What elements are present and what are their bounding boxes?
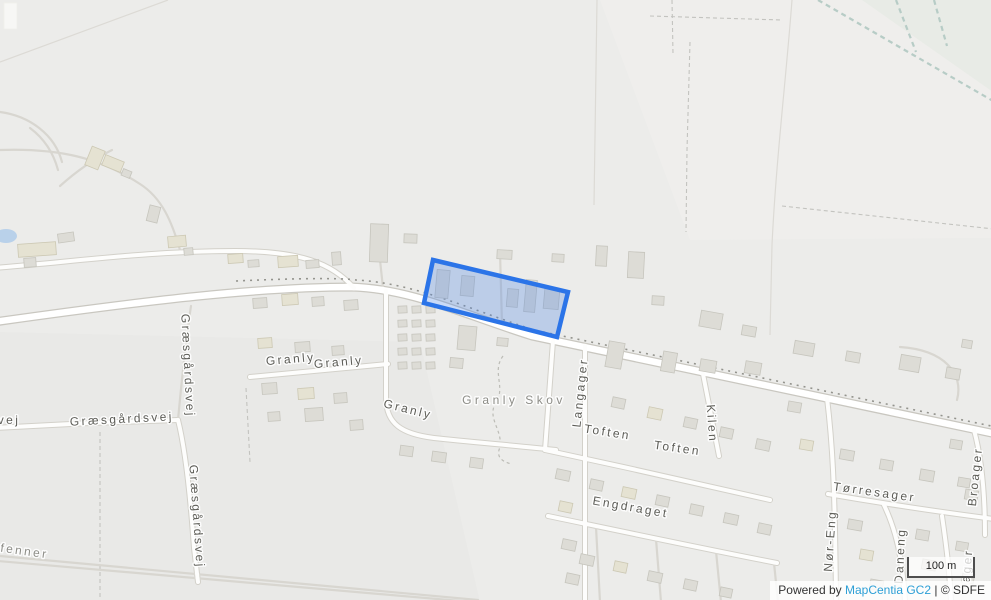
building-footprint xyxy=(184,248,194,256)
building-footprint xyxy=(398,348,407,355)
building-footprint xyxy=(652,296,664,306)
building-footprint xyxy=(627,252,644,279)
building-footprint xyxy=(565,573,580,585)
building-footprint xyxy=(621,487,637,500)
building-footprint xyxy=(949,439,962,450)
building-footprint xyxy=(398,320,407,327)
building-footprint xyxy=(847,519,863,531)
building-footprint xyxy=(399,445,413,457)
building-footprint xyxy=(426,320,435,327)
building-footprint xyxy=(555,469,571,482)
building-footprint xyxy=(262,382,278,394)
building-footprint xyxy=(228,253,244,263)
building-footprint xyxy=(589,479,604,491)
building-footprint xyxy=(787,401,802,413)
building-footprint xyxy=(121,169,132,179)
building-footprint xyxy=(412,320,421,327)
attribution-suffix: | © SDFE xyxy=(931,583,985,597)
building-footprint xyxy=(253,298,268,309)
building-footprint xyxy=(647,571,663,584)
building-footprint xyxy=(18,242,57,258)
building-footprint xyxy=(689,504,704,516)
mapcentia-gc2-link[interactable]: MapCentia GC2 xyxy=(845,583,931,597)
building-footprint xyxy=(268,412,281,422)
scale-label: 100 m xyxy=(926,560,957,572)
building-footprint xyxy=(85,146,105,170)
building-footprint xyxy=(699,359,717,374)
building-footprint xyxy=(561,539,577,552)
building-footprint xyxy=(282,293,299,305)
building-footprint xyxy=(915,529,930,541)
building-footprint xyxy=(258,338,273,349)
building-footprint xyxy=(398,362,407,369)
building-footprint xyxy=(298,387,315,399)
building-footprint xyxy=(369,224,388,263)
building-footprint xyxy=(332,252,342,266)
street-label: Daneng xyxy=(892,527,909,584)
building-footprint xyxy=(683,417,698,429)
building-footprint xyxy=(344,300,359,311)
building-footprint xyxy=(719,587,733,598)
building-footprint xyxy=(431,451,446,463)
map-scale-control: 100 m xyxy=(907,557,975,578)
street-label: Toften xyxy=(583,421,632,442)
building-footprint xyxy=(579,554,595,567)
building-footprint xyxy=(497,250,512,260)
building-footprint xyxy=(899,354,921,372)
building-footprint xyxy=(595,246,607,267)
building-footprint xyxy=(412,306,421,313)
building-footprint xyxy=(102,155,125,173)
building-footprint xyxy=(793,340,815,356)
building-footprint xyxy=(146,205,161,223)
map-canvas[interactable]: GranlyGranlyGranlyGranly SkovvejGræsgård… xyxy=(0,0,991,600)
building-footprint xyxy=(961,339,972,349)
building-footprint xyxy=(334,393,348,404)
building-footprint xyxy=(278,255,299,267)
building-footprint xyxy=(845,351,861,363)
building-footprint xyxy=(755,439,771,452)
building-footprint xyxy=(558,501,573,513)
building-footprint xyxy=(469,457,483,469)
building-footprint xyxy=(741,325,757,337)
building-footprint xyxy=(412,362,421,369)
building-footprint xyxy=(660,351,677,373)
building-footprint xyxy=(24,258,37,268)
building-footprint xyxy=(757,523,772,535)
attribution-prefix: Powered by xyxy=(778,583,845,597)
building-footprint xyxy=(4,3,17,29)
map-attribution: Powered by MapCentia GC2 | © SDFE xyxy=(770,581,991,600)
building-footprint xyxy=(723,513,739,526)
building-footprint xyxy=(919,469,935,482)
building-footprint xyxy=(497,338,509,347)
building-footprint xyxy=(168,235,187,248)
building-footprint xyxy=(412,348,421,355)
building-footprint xyxy=(611,397,626,409)
building-footprint xyxy=(945,367,961,380)
building-footprint xyxy=(799,439,814,451)
building-footprint xyxy=(57,232,74,243)
building-footprint xyxy=(744,361,762,376)
building-footprint xyxy=(305,407,324,421)
building-footprint xyxy=(839,449,855,461)
building-footprint xyxy=(248,260,259,268)
street-label: Toften xyxy=(653,438,702,458)
building-footprint xyxy=(683,579,698,591)
street-label: Kilen xyxy=(704,404,721,444)
building-footprint xyxy=(457,325,477,350)
building-footprint xyxy=(306,260,320,269)
building-footprint xyxy=(552,254,564,263)
building-footprint xyxy=(398,334,407,341)
street-label: vej xyxy=(0,413,20,427)
building-footprint xyxy=(398,306,407,313)
building-footprint xyxy=(699,310,723,330)
building-footprint xyxy=(426,334,435,341)
building-footprint xyxy=(613,561,628,573)
map-viewport[interactable]: GranlyGranlyGranlyGranly SkovvejGræsgård… xyxy=(0,0,991,600)
building-footprint xyxy=(450,357,464,368)
building-footprint xyxy=(879,459,894,471)
building-footprint xyxy=(404,234,417,243)
building-footprint xyxy=(350,420,364,431)
street-label: Granly Skov xyxy=(462,393,566,407)
building-footprint xyxy=(859,549,874,561)
building-footprint xyxy=(426,362,435,369)
building-footprint xyxy=(312,297,325,307)
building-footprint xyxy=(719,427,734,439)
building-footprint xyxy=(605,341,625,369)
building-footprint xyxy=(647,407,663,421)
building-footprint xyxy=(412,334,421,341)
building-footprint xyxy=(426,348,435,355)
